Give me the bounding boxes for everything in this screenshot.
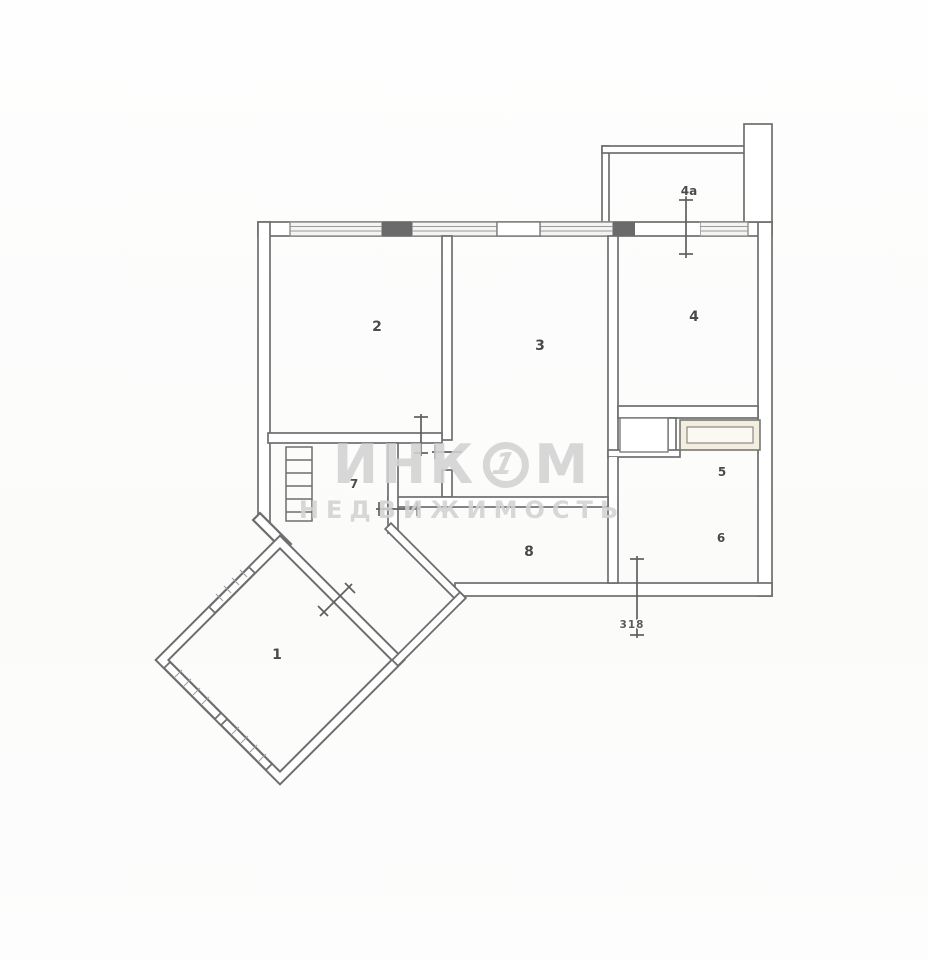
room-label-5: 5 <box>718 465 726 479</box>
wall-pier <box>382 222 412 236</box>
interior-walls <box>268 236 758 583</box>
balcony-walls <box>602 124 772 222</box>
room-1-walls <box>162 529 460 778</box>
room-label-6: 6 <box>717 531 725 545</box>
doorway-box <box>620 418 668 452</box>
floor-plan-drawing: 1 2 3 4 4а 5 6 7 8 318 <box>0 0 928 960</box>
room-label-1: 1 <box>272 647 282 663</box>
room-label-3: 3 <box>535 338 545 354</box>
entrance-door-number: 318 <box>620 619 645 631</box>
wall-pier <box>497 222 540 236</box>
balcony-label-4a: 4а <box>681 184 697 198</box>
room-label-4: 4 <box>689 309 699 325</box>
wardrobe <box>680 420 760 450</box>
windows-room-1 <box>170 570 266 764</box>
room-label-8: 8 <box>524 544 534 560</box>
closet-hall-7 <box>286 447 312 521</box>
wall-pier <box>613 222 635 236</box>
room-label-2: 2 <box>372 319 382 335</box>
room-label-7: 7 <box>350 477 358 491</box>
floor-plan-document: 1 2 3 4 4а 5 6 7 8 318 ИНК 1 М НЕДВИЖИМО… <box>0 0 928 960</box>
